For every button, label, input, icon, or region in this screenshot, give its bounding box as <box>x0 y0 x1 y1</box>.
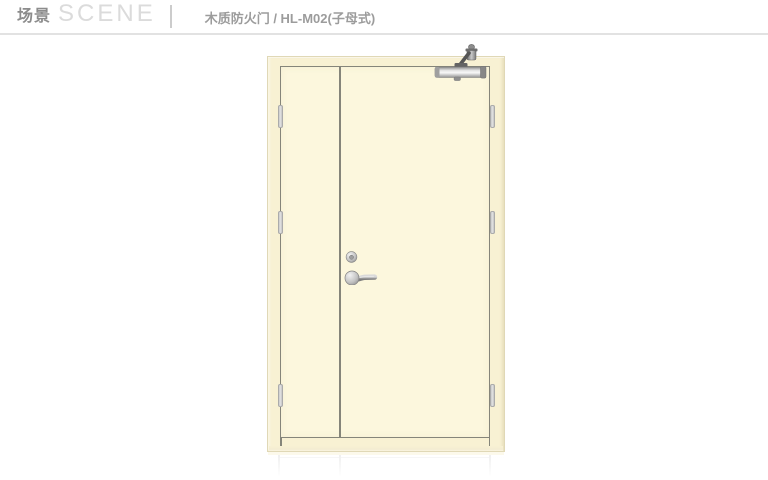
hinge-icon <box>490 211 495 234</box>
section-title-en: SCENE <box>58 0 156 28</box>
product-title: 木质防火门 / HL-M02(子母式) <box>205 6 375 27</box>
leaf-child <box>281 67 339 437</box>
header-divider <box>170 5 172 28</box>
lockset <box>341 247 383 285</box>
section-title-zh: 场景 <box>17 1 51 32</box>
lever-handle-icon <box>345 271 375 285</box>
header: 场景 SCENE 木质防火门 / HL-M02(子母式) <box>0 0 768 35</box>
door-leaves <box>280 66 490 438</box>
hinge-icon <box>278 211 283 234</box>
door-frame <box>267 56 505 452</box>
door-sill <box>269 446 503 451</box>
floor-reflection <box>267 455 505 479</box>
lock-cylinder-icon <box>346 252 357 263</box>
hinge-icon <box>490 105 495 128</box>
hinge-icon <box>278 384 283 407</box>
hinge-icon <box>278 105 283 128</box>
page: 场景 SCENE 木质防火门 / HL-M02(子母式) <box>0 0 768 480</box>
hinge-icon <box>490 384 495 407</box>
door-closer-icon <box>428 43 498 85</box>
